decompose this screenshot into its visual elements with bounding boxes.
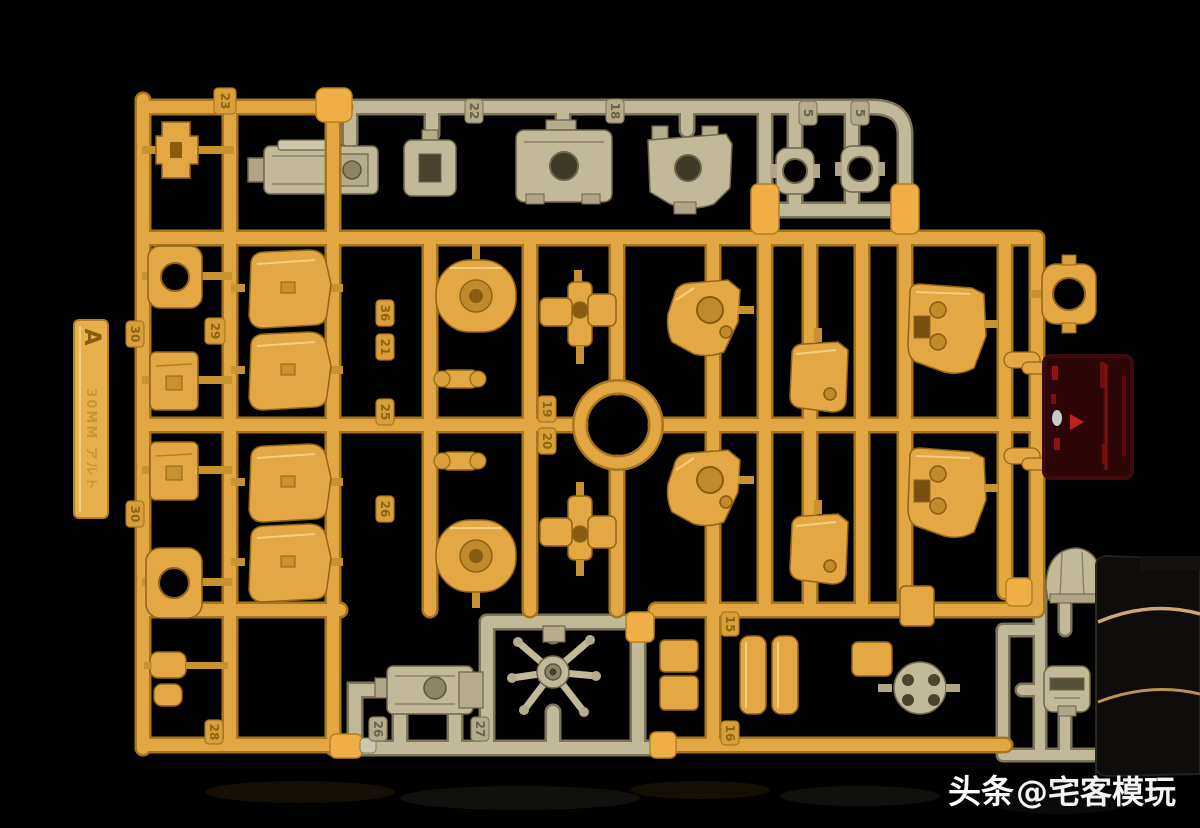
white-glint [1052, 410, 1062, 426]
yellow-connector-part [434, 370, 486, 388]
part-number: 15 [723, 616, 737, 633]
part-number: 30 [128, 326, 142, 343]
runner-letter: A [79, 328, 104, 345]
khaki-clamp-part [404, 130, 456, 196]
part-number: 26 [371, 721, 385, 738]
watermark-handle: @宅客模玩 [1016, 773, 1176, 811]
part-number: 30 [128, 506, 142, 523]
runner-molded-text: 30MM アルト [83, 388, 98, 491]
part-number: 5 [801, 109, 815, 117]
part-number: 36 [378, 305, 392, 322]
runner-gate-tag: A 30MM アルト [74, 320, 108, 518]
watermark: 头条 @宅客模玩 [948, 772, 1176, 811]
photo-of-model-kit-runner: A 30MM アルト [0, 0, 1200, 828]
part-number: 27 [473, 721, 487, 738]
khaki-face-part [1044, 666, 1090, 716]
runner-photo-canvas: A 30MM アルト [0, 0, 1200, 828]
khaki-rifle-part [375, 666, 483, 714]
part-number: 5 [853, 109, 867, 117]
watermark-brand: 头条 [948, 772, 1014, 811]
khaki-box-part [516, 120, 612, 204]
part-number: 25 [378, 404, 392, 421]
stacked-black-runners [1096, 556, 1200, 776]
part-number: 22 [467, 103, 481, 120]
part-number: 20 [540, 433, 554, 450]
part-number: 28 [207, 724, 221, 741]
part-number: 29 [208, 323, 222, 340]
part-number: 21 [378, 339, 392, 356]
khaki-rifle-part [248, 140, 378, 194]
khaki-ring-part [835, 146, 885, 192]
part-number: 23 [218, 93, 232, 110]
yellow-connector-part [434, 452, 486, 470]
part-number: 19 [540, 401, 554, 418]
part-number: 26 [378, 501, 392, 518]
part-number: 16 [723, 725, 737, 742]
clear-red-runner [1044, 356, 1132, 478]
part-number: 18 [608, 103, 622, 120]
